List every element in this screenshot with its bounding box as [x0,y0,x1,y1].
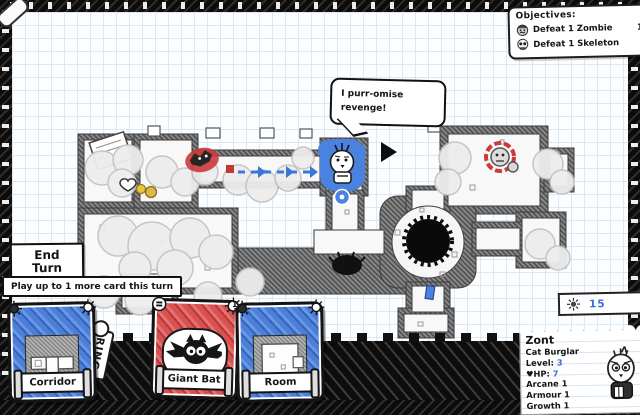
play-hint-text: Play up to 1 more card this turn [11,282,173,292]
card-corridor[interactable]: Corridor [7,301,97,403]
card-name: Giant Bat [168,373,221,385]
hp-value: 7 [553,368,559,378]
gold-counter: 15 [558,291,640,316]
objective-label: Defeat 1 Zombie [533,23,613,35]
speech-line: revenge! [341,101,435,118]
card-name: Room [265,377,297,389]
speech-bubble: I purr-omise revenge! [329,78,446,128]
end-turn-label-2: Turn [32,261,62,274]
character-panel: Zont Cat Burglar Level: 3 ♥HP: 7 Arcane … [519,330,640,415]
end-turn-label-1: End [34,249,59,262]
sun-burst-icon [79,298,97,316]
play-hint-bar: Play up to 1 more card this turn [2,276,182,297]
zombie-icon [516,23,529,36]
stat-value: 1 [564,389,570,399]
equals-badge-icon [150,295,168,313]
card-room[interactable]: Room [235,301,325,403]
card-name-scroll: Giant Bat [158,368,231,391]
level-value: 3 [557,357,563,367]
stat-value: 1 [562,379,568,389]
sun-burst-icon [5,300,23,318]
objective-label: Defeat 1 Skeleton [533,38,619,50]
gem-sparkle-icon [567,298,580,311]
stat-value: 1 [564,400,570,410]
card-name: Corridor [29,377,76,389]
end-turn-button[interactable]: End Turn [10,243,84,281]
gold-value: 15 [589,298,606,310]
sun-burst-icon [233,299,251,317]
sun-burst-icon [307,298,325,316]
card-name-scroll: Room [244,371,316,393]
game-screen: { "objectives": { "title": "Objectives:"… [0,0,640,400]
card-name-scroll: Corridor [16,371,88,394]
card-giant-bat[interactable]: 1 Giant Bat [150,298,241,400]
character-portrait [599,346,640,407]
skeleton-icon [516,38,529,51]
objectives-panel: Objectives: Defeat 1 Zombie 1 Defeat 1 S… [507,3,640,59]
objective-row-skeleton: Defeat 1 Skeleton [516,35,640,53]
